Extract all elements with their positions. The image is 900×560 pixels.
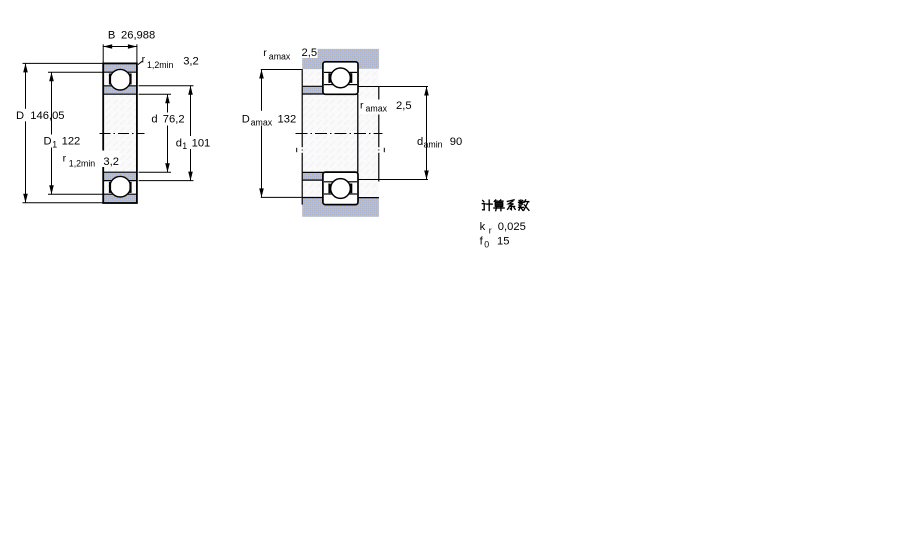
svg-text:3,2: 3,2: [183, 56, 199, 68]
svg-text:amax: amax: [269, 51, 291, 61]
svg-text:122: 122: [62, 136, 81, 148]
svg-text:146,05: 146,05: [30, 110, 64, 122]
svg-text:132: 132: [278, 113, 297, 125]
svg-text:k: k: [480, 221, 486, 233]
svg-text:f: f: [480, 235, 484, 247]
svg-text:D: D: [16, 110, 24, 122]
svg-text:1,2min: 1,2min: [147, 60, 174, 70]
svg-text:r: r: [63, 153, 67, 165]
svg-text:D: D: [44, 136, 52, 148]
svg-text:d: d: [151, 114, 157, 126]
svg-text:90: 90: [450, 136, 462, 148]
svg-text:15: 15: [497, 235, 509, 247]
svg-text:2,5: 2,5: [396, 100, 412, 112]
svg-text:1: 1: [52, 139, 57, 149]
svg-text:r: r: [360, 99, 364, 111]
svg-text:D: D: [242, 113, 250, 125]
svg-text:0: 0: [484, 240, 489, 250]
svg-text:r: r: [142, 54, 146, 66]
svg-text:amax: amax: [366, 104, 388, 114]
svg-text:r: r: [263, 47, 267, 59]
svg-text:26,988: 26,988: [121, 29, 155, 41]
svg-text:d: d: [417, 136, 423, 148]
svg-text:2,5: 2,5: [302, 47, 318, 59]
svg-text:B: B: [108, 29, 115, 41]
svg-text:amax: amax: [251, 117, 273, 127]
svg-text:3,2: 3,2: [103, 156, 119, 168]
svg-text:0,025: 0,025: [498, 221, 526, 233]
svg-text:101: 101: [192, 137, 211, 149]
svg-text:d: d: [176, 137, 182, 149]
svg-text:1: 1: [182, 141, 187, 151]
svg-text:1,2min: 1,2min: [69, 158, 96, 168]
svg-text:r: r: [489, 225, 492, 235]
svg-text:76,2: 76,2: [163, 114, 185, 126]
svg-text:amin: amin: [424, 140, 443, 150]
